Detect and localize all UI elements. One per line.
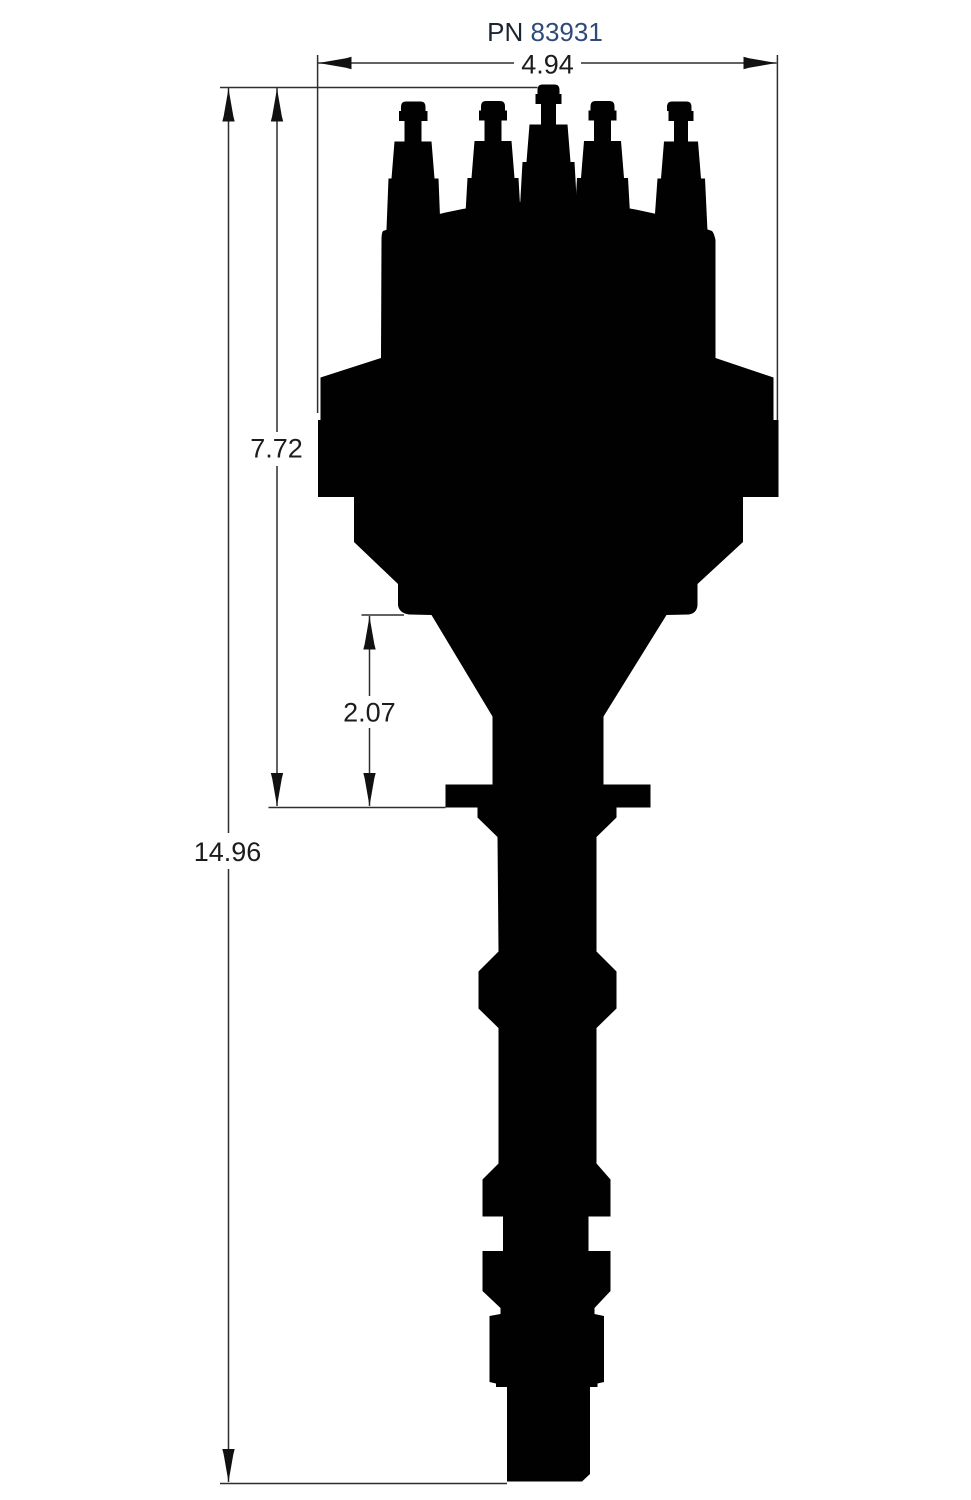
svg-text:14.96: 14.96 [194,837,262,867]
svg-text:PN 83931: PN 83931 [487,17,603,47]
svg-text:4.94: 4.94 [521,50,574,80]
svg-text:2.07: 2.07 [343,698,396,728]
svg-text:7.72: 7.72 [250,433,303,463]
